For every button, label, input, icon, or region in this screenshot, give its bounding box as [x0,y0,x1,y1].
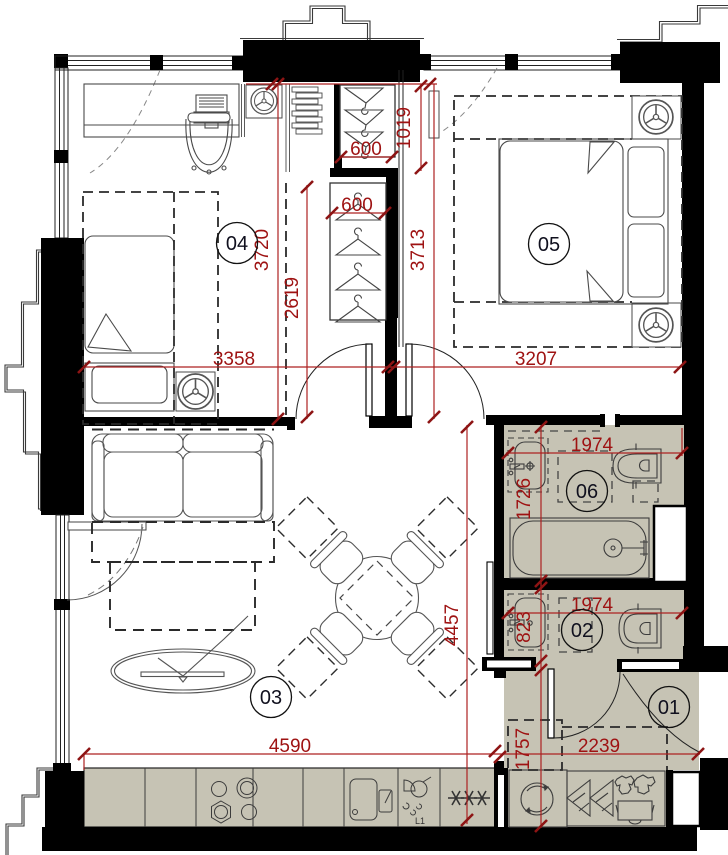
svg-text:600: 600 [350,139,382,160]
svg-text:06: 06 [576,481,598,503]
svg-text:3358: 3358 [213,349,255,370]
svg-text:1757: 1757 [513,728,534,770]
svg-text:3713: 3713 [408,229,429,271]
svg-text:1726: 1726 [514,478,535,520]
svg-text:823: 823 [514,611,535,643]
svg-text:03: 03 [260,687,282,709]
svg-text:3207: 3207 [515,349,557,370]
svg-text:1019: 1019 [394,107,415,149]
svg-text:02: 02 [571,620,593,642]
svg-text:04: 04 [226,233,248,255]
svg-text:4457: 4457 [442,604,463,646]
svg-text:1974: 1974 [571,435,614,456]
svg-text:3720: 3720 [252,229,273,271]
svg-text:4590: 4590 [269,736,311,757]
svg-text:2619: 2619 [282,277,303,319]
svg-text:L1: L1 [415,816,425,826]
svg-text:600: 600 [341,195,373,216]
svg-text:2239: 2239 [578,736,620,757]
svg-text:01: 01 [658,697,680,719]
svg-text:05: 05 [538,234,560,256]
